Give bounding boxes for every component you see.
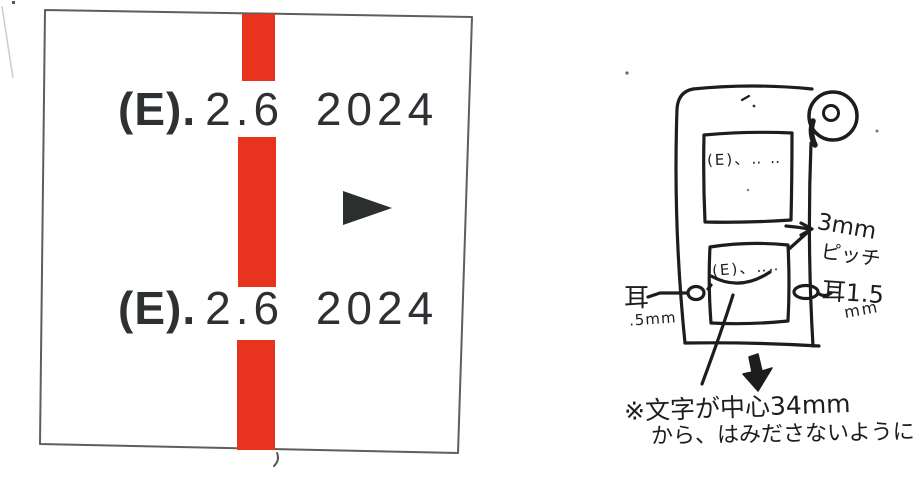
label-prefix: (E). (118, 83, 196, 135)
right-ear-tab (794, 286, 818, 299)
tape-roll-core-icon (824, 106, 839, 121)
note-leader-line (702, 295, 733, 384)
tape-right-edge (809, 143, 813, 346)
red-stripe-bottom (237, 340, 275, 450)
scanned-page: (E).2.6 2024 (E).2.6 2024 (E)、‥ ‥ (E)、‥‥… (0, 0, 919, 482)
left-ear-tab (688, 287, 704, 300)
label-prefix: (E). (118, 282, 196, 334)
left-ear-label: 耳 (624, 278, 649, 314)
down-arrow-icon (743, 354, 772, 391)
pen-dash (742, 96, 749, 100)
upper-frame-handwriting: (E)、‥ ‥ (707, 147, 783, 171)
tape-top-edge (693, 86, 812, 89)
red-stripe-top (242, 14, 275, 81)
note-line-2: から、はみださないように (651, 414, 915, 451)
pen-dot (747, 189, 750, 192)
tape-roll-icon (809, 92, 857, 140)
tape-bottom-edge (685, 343, 819, 346)
tape-left-edge (676, 89, 693, 343)
left-ear-value: .5mm (628, 308, 677, 329)
pen-squiggle (274, 453, 278, 466)
red-stripe-middle (238, 137, 276, 287)
label-text-row-1: (E).2.6 2024 (118, 85, 438, 133)
label-text-row-2: (E).2.6 2024 (118, 284, 438, 332)
scan-speck (12, 1, 15, 4)
scan-streak (2, 6, 13, 78)
pen-dot (753, 105, 756, 108)
label-date-value: 2.6 2024 (205, 282, 438, 334)
label-sample-panel (40, 10, 472, 453)
pen-dot (876, 130, 879, 133)
pen-dot (625, 71, 628, 74)
label-date-value: 2.6 2024 (205, 83, 438, 135)
